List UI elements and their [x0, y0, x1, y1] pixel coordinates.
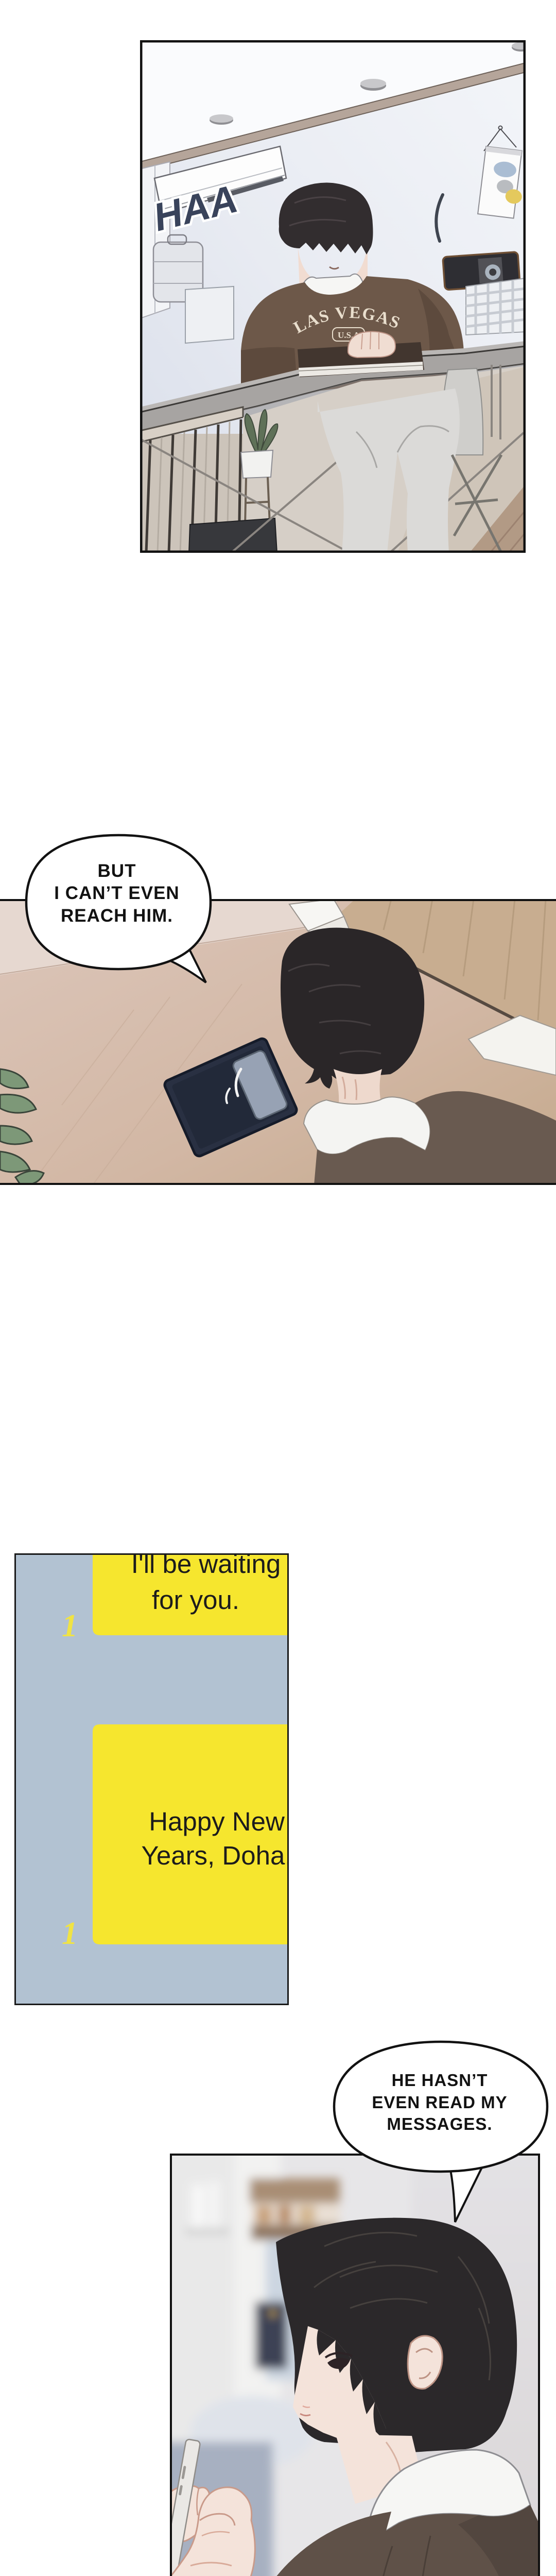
- svg-text:for you.: for you.: [152, 1585, 239, 1615]
- svg-text:I'll be waiting: I'll be waiting: [131, 1553, 281, 1579]
- svg-text:I CAN’T EVEN: I CAN’T EVEN: [54, 883, 179, 903]
- svg-text:1: 1: [62, 1608, 78, 1643]
- svg-text:BUT: BUT: [98, 861, 136, 881]
- svg-text:Happy New: Happy New: [149, 1807, 285, 1836]
- svg-text:MESSAGES.: MESSAGES.: [387, 2114, 492, 2133]
- svg-text:Years, Doha.: Years, Doha.: [142, 1841, 289, 1870]
- svg-text:REACH HIM.: REACH HIM.: [61, 906, 173, 926]
- svg-text:EVEN READ MY: EVEN READ MY: [372, 2093, 507, 2112]
- svg-text:1: 1: [62, 1916, 78, 1951]
- svg-text:HE HASN’T: HE HASN’T: [392, 2071, 488, 2090]
